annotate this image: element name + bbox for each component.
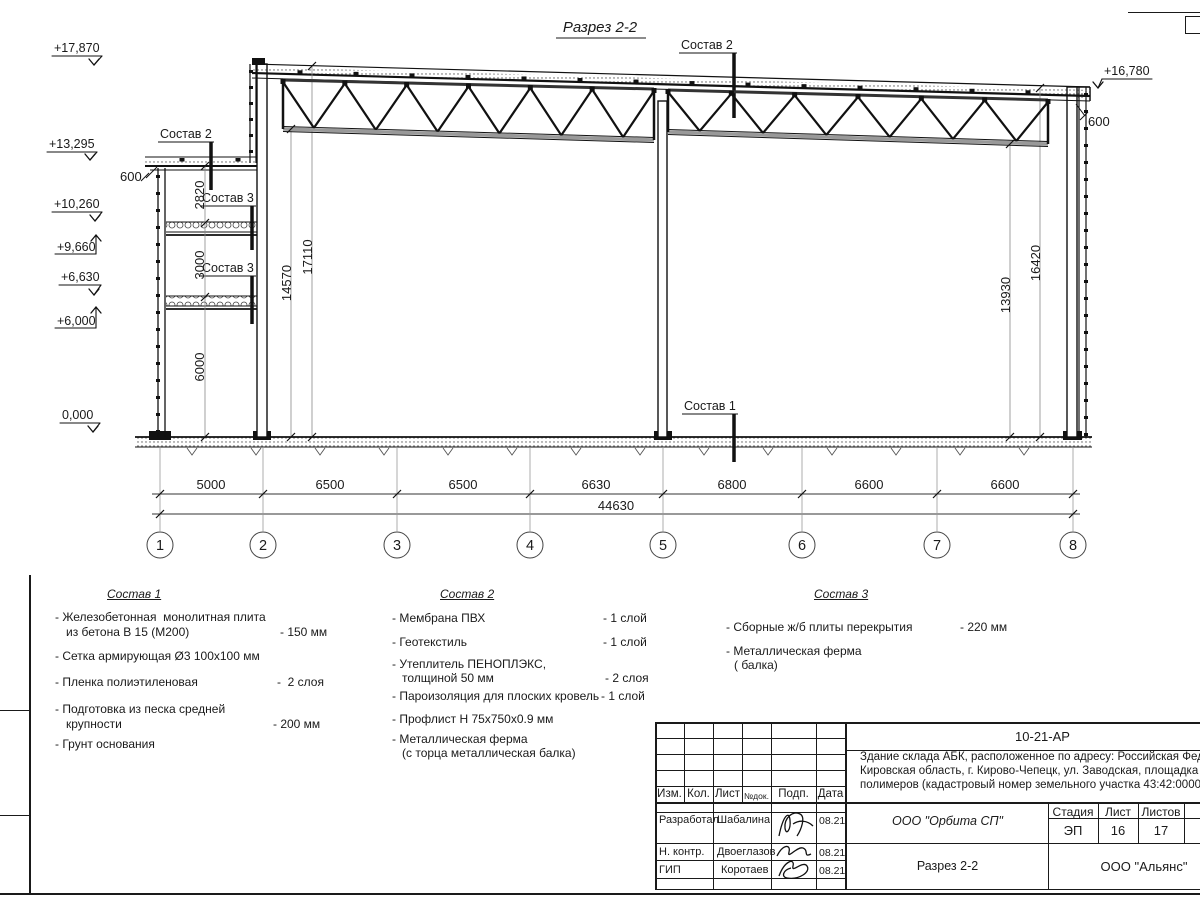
axis-8: 8 [1069, 538, 1077, 554]
role-razrabotal: Разработал [659, 814, 719, 826]
stamp-corner-top [1185, 16, 1200, 17]
rev-header-izm: Изм. [655, 788, 684, 800]
client-org: ООО "Альянс" [1048, 859, 1200, 874]
legend2-value: - 1 слой [603, 636, 647, 650]
legend3-item: ( балка) [734, 659, 778, 673]
elevation-10260: +10,260 [54, 197, 100, 211]
composition-leaders: Состав 2 Состав 2 Состав 3 Состав 3 Сост… [158, 38, 738, 462]
date-nkontr: 08.21 [819, 847, 845, 859]
listov-header: Листов [1138, 805, 1184, 819]
name-dvoeglazov: Двоеглазов [717, 846, 775, 858]
legend1-value: - 2 слоя [277, 676, 324, 690]
legend2-value: - 1 слой [603, 612, 647, 626]
date-razrabotal: 08.21 [819, 815, 845, 827]
label-sostav3-upper: Состав 3 [202, 191, 254, 205]
frame-bottom-line [0, 893, 1200, 895]
span-dim-1: 5000 [197, 477, 226, 492]
eaves-right-600: 600 [1088, 114, 1110, 129]
dim-17110: 17110 [300, 239, 315, 274]
dimension-chain: 5000 6500 6500 6630 6800 6600 6600 44630 [152, 477, 1080, 514]
legend1-item: - Подготовка из песка средней [55, 703, 225, 717]
rev-header-podp: Подп. [771, 788, 816, 800]
frame-tick-lower [0, 815, 29, 816]
legend3-heading: Состав 3 [814, 588, 868, 602]
dim-6000: 6000 [192, 353, 207, 382]
axis-2: 2 [259, 538, 267, 554]
legend2-item: - Утеплитель ПЕНОПЛЭКС, [392, 658, 546, 672]
frame-tick-upper [0, 710, 29, 711]
span-dim-4: 6630 [582, 477, 611, 492]
legend2-item: - Металлическая ферма [392, 733, 528, 747]
stamp-corner-left [1185, 16, 1186, 33]
role-gip: ГИП [659, 864, 681, 876]
design-org: ООО "Орбита СП" [847, 814, 1048, 828]
span-dim-6: 6600 [855, 477, 884, 492]
frame-top-right-line [1128, 12, 1200, 13]
label-sostav2-annex: Состав 2 [160, 127, 212, 141]
elevation-6630: +6,630 [61, 270, 100, 284]
legend1-item: - Сетка армирующая Ø3 100х100 мм [55, 650, 260, 664]
signature-shabalina [773, 806, 817, 844]
signature-korotaev [773, 856, 817, 886]
rev-header-ndok: №док. [742, 791, 771, 801]
ground-slab [135, 431, 1092, 447]
elevation-13295: +13,295 [49, 137, 95, 151]
axis-bubbles: 1 2 3 4 5 6 7 8 [147, 532, 1086, 558]
stamp-corner-bottom [1185, 33, 1200, 34]
dim-16420: 16420 [1028, 245, 1043, 281]
list-header: Лист [1098, 805, 1138, 819]
axis-4: 4 [526, 538, 534, 554]
title-block: Изм. Кол. Лист №док. Подп. Дата 10-21-АР… [655, 722, 1200, 890]
name-shabalina: Шабалина [717, 814, 770, 826]
elevation-16780: +16,780 [1104, 64, 1150, 78]
rev-header-kol: Кол. [684, 788, 713, 800]
total-dim: 44630 [598, 498, 634, 513]
legend3-item: - Сборные ж/б плиты перекрытия [726, 621, 912, 635]
span-dim-5: 6800 [718, 477, 747, 492]
page-title: Разрез 2-2 [563, 19, 638, 36]
legend1-item: - Грунт основания [55, 738, 155, 752]
sheet-number: 16 [1098, 823, 1138, 838]
rev-header-data: Дата [816, 788, 845, 800]
elevation-17870: +17,870 [54, 41, 100, 55]
axis-1: 1 [156, 538, 164, 554]
dim-3000: 3000 [192, 251, 207, 280]
legend2-item: (с торца металлическая балка) [402, 747, 576, 761]
legend2-item: - Профлист Н 75х750х0.9 мм [392, 713, 553, 727]
frame-left-line [29, 575, 31, 894]
legend1-value: - 200 мм [273, 718, 320, 732]
elevation-6000: +6,000 [57, 314, 96, 328]
legend1-heading: Состав 1 [107, 588, 161, 602]
label-sostav3-lower: Состав 3 [202, 261, 254, 275]
role-nkontr: Н. контр. [659, 846, 704, 858]
span-dim-3: 6500 [449, 477, 478, 492]
legend3-item: - Металлическая ферма [726, 645, 862, 659]
legend1-item: - Пленка полиэтиленовая [55, 676, 198, 690]
sheets-total: 17 [1138, 823, 1184, 838]
section-drawing: Разрез 2-2 [0, 0, 1200, 580]
label-sostav1-floor: Состав 1 [684, 399, 736, 413]
legend2-item: - Мембрана ПВХ [392, 612, 485, 626]
vertical-dimensions: 2820 3000 6000 14570 17110 13930 16420 [192, 66, 1043, 437]
legend1-item: крупности [66, 718, 122, 732]
project-description-line1: Здание склада АБК, расположенное по адре… [860, 751, 1200, 763]
stage-header: Стадия [1048, 805, 1098, 819]
project-description-line3: полимеров (кадастровый номер земельного … [860, 779, 1200, 791]
dim-13930: 13930 [998, 277, 1013, 313]
axis-3: 3 [393, 538, 401, 554]
legend3-value: - 220 мм [960, 621, 1007, 635]
name-korotaev: Коротаев [721, 864, 769, 876]
stage-value: ЭП [1048, 823, 1098, 838]
legend1-item: из бетона В 15 (М200) [66, 626, 189, 640]
eaves-left-600: 600 [120, 169, 142, 184]
columns-walls [250, 58, 1090, 437]
sheet-name: Разрез 2-2 [847, 859, 1048, 873]
legend2-heading: Состав 2 [440, 588, 494, 602]
legend2-item: толщиной 50 мм [402, 672, 494, 686]
date-gip: 08.21 [819, 865, 845, 877]
drawing-sheet: { "page_title": "Разрез 2-2", "drawing":… [0, 0, 1200, 900]
dim-2820: 2820 [192, 181, 207, 210]
elevation-9660: +9,660 [57, 240, 96, 254]
dim-14570: 14570 [279, 265, 294, 301]
legend2-value: - 2 слоя [605, 672, 649, 686]
span-dim-2: 6500 [316, 477, 345, 492]
project-description-line2: Кировская область, г. Кирово-Чепецк, ул.… [860, 765, 1200, 777]
elevation-0000: 0,000 [62, 408, 93, 422]
document-code: 10-21-АР [845, 729, 1200, 744]
span-dim-7: 6600 [991, 477, 1020, 492]
axis-7: 7 [933, 538, 941, 554]
drawing-decorations [156, 62, 1088, 532]
axis-5: 5 [659, 538, 667, 554]
legend2-value: - 1 слой [601, 690, 645, 704]
legend1-item: - Железобетонная монолитная плита [55, 611, 266, 625]
legend2-item: - Пароизоляция для плоских кровель [392, 690, 599, 704]
label-sostav2-roof: Состав 2 [681, 38, 733, 52]
rev-header-list: Лист [713, 788, 742, 800]
legend1-value: - 150 мм [280, 626, 327, 640]
legend2-item: - Геотекстиль [392, 636, 467, 650]
axis-6: 6 [798, 538, 806, 554]
